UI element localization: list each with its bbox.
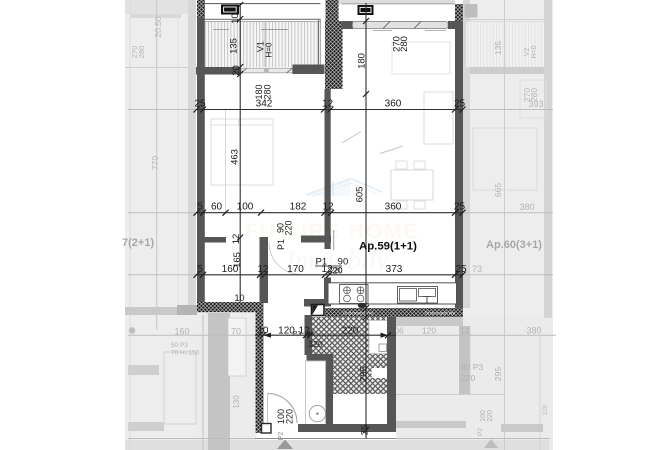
svg-text:360: 360 [385,202,402,213]
svg-text:220: 220 [285,409,295,424]
svg-text:20: 20 [231,65,242,76]
svg-text:P2: P2 [278,432,285,441]
svg-text:Ondemand-Wo: Ondemand-Wo [425,311,456,316]
svg-text:70 H=150: 70 H=150 [171,350,200,357]
svg-text:7(2+1): 7(2+1) [122,237,154,249]
svg-text:12: 12 [257,264,269,275]
svg-text:170: 170 [287,264,304,275]
svg-text:FUTURE HOME: FUTURE HOME [245,219,419,243]
svg-text:73: 73 [472,264,482,274]
svg-text:25: 25 [194,99,206,110]
svg-text:605: 605 [355,187,366,203]
svg-text:12: 12 [322,202,334,213]
svg-text:360: 360 [385,99,402,110]
svg-text:V2: V2 [524,48,531,57]
svg-text:100: 100 [480,410,487,422]
svg-text:220: 220 [284,220,294,235]
svg-text:220: 220 [487,410,494,422]
svg-text:60: 60 [211,202,223,213]
svg-text:20.50: 20.50 [153,16,163,38]
svg-text:220: 220 [342,326,359,337]
svg-text:25: 25 [454,99,466,110]
svg-text:100: 100 [237,202,254,213]
svg-text:165: 165 [232,252,243,268]
svg-text:90: 90 [307,331,315,338]
svg-text:220: 220 [542,404,549,415]
svg-text:295: 295 [359,366,370,382]
svg-text:280: 280 [263,84,273,99]
svg-text:295: 295 [493,367,503,381]
svg-text:H=0: H=0 [531,45,538,58]
svg-text:Ap.60(3+1): Ap.60(3+1) [486,239,542,251]
svg-text:12: 12 [322,99,334,110]
svg-text:182: 182 [290,202,307,213]
svg-text:320: 320 [308,339,322,349]
svg-text:220: 220 [461,373,475,383]
svg-text:373: 373 [386,264,403,275]
svg-text:135: 135 [493,41,503,55]
svg-text:120: 120 [422,326,436,336]
svg-text:25: 25 [360,425,371,436]
svg-text:12: 12 [231,234,242,245]
svg-text:280: 280 [137,46,146,59]
svg-text:25: 25 [455,264,467,275]
svg-text:H=0: H=0 [265,42,274,57]
svg-text:12: 12 [460,326,470,336]
svg-text:5: 5 [197,202,203,213]
svg-text:P1: P1 [276,239,286,250]
svg-text:10: 10 [234,293,244,303]
svg-text:380: 380 [519,202,534,212]
svg-text:220: 220 [328,266,343,276]
svg-text:Ap.59(1+1): Ap.59(1+1) [359,241,417,253]
svg-text:P2: P2 [477,428,484,436]
svg-text:80 P3: 80 P3 [461,362,483,372]
svg-text:393: 393 [528,99,543,109]
svg-text:180: 180 [357,53,368,69]
svg-text:463: 463 [230,149,241,165]
svg-text:25: 25 [454,202,466,213]
svg-text:10: 10 [257,326,269,337]
svg-text:10: 10 [230,13,241,24]
svg-text:130: 130 [232,395,241,409]
svg-text:135: 135 [229,38,240,54]
svg-text:50 P3: 50 P3 [171,342,188,349]
svg-text:770: 770 [150,156,160,170]
svg-text:5: 5 [197,264,203,275]
svg-text:280: 280 [399,36,410,52]
svg-text:380: 380 [526,326,541,336]
